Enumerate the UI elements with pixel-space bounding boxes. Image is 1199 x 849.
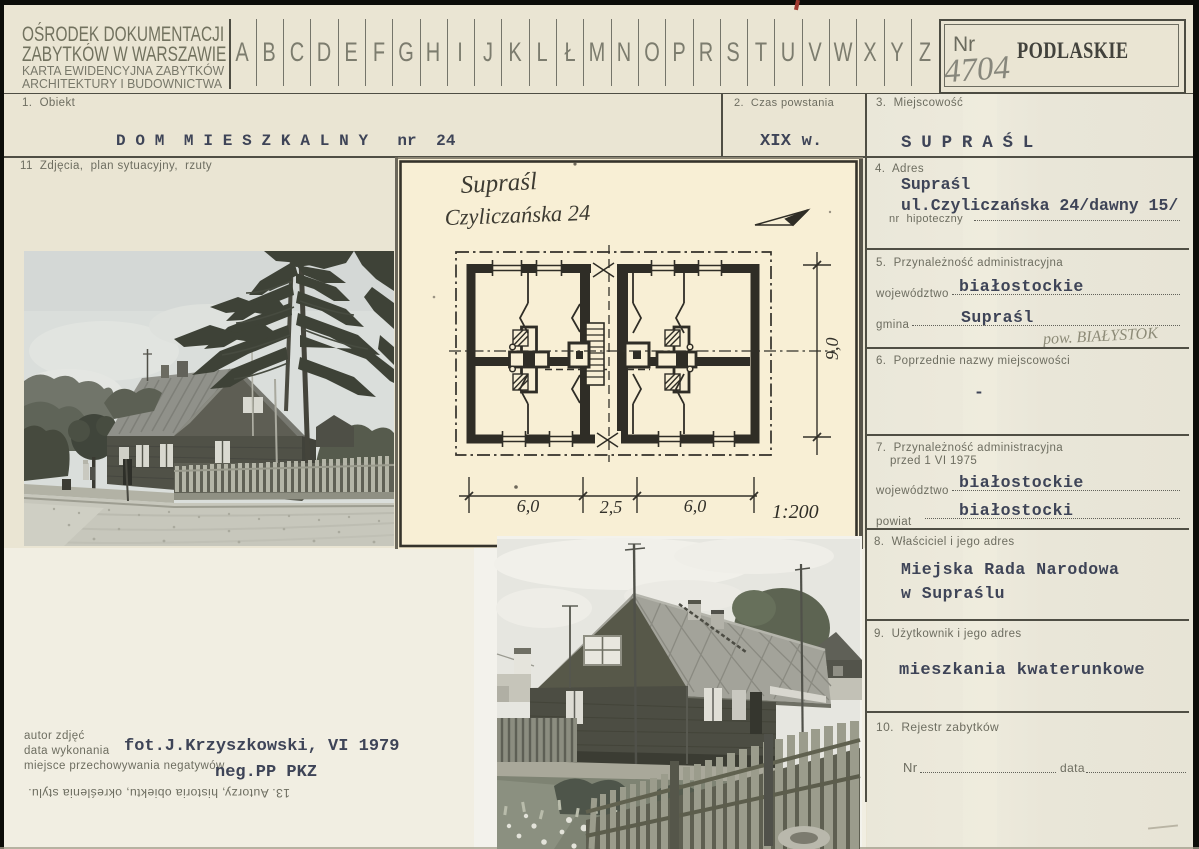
svg-text:1:200: 1:200	[772, 501, 819, 523]
svg-text:Supraśl: Supraśl	[460, 168, 538, 199]
svg-text:6,0: 6,0	[684, 496, 707, 516]
svg-text:9,0: 9,0	[822, 338, 842, 361]
svg-text:Czyliczańska 24: Czyliczańska 24	[444, 200, 590, 230]
svg-text:6,0: 6,0	[517, 496, 540, 516]
svg-text:2,5: 2,5	[600, 497, 623, 517]
